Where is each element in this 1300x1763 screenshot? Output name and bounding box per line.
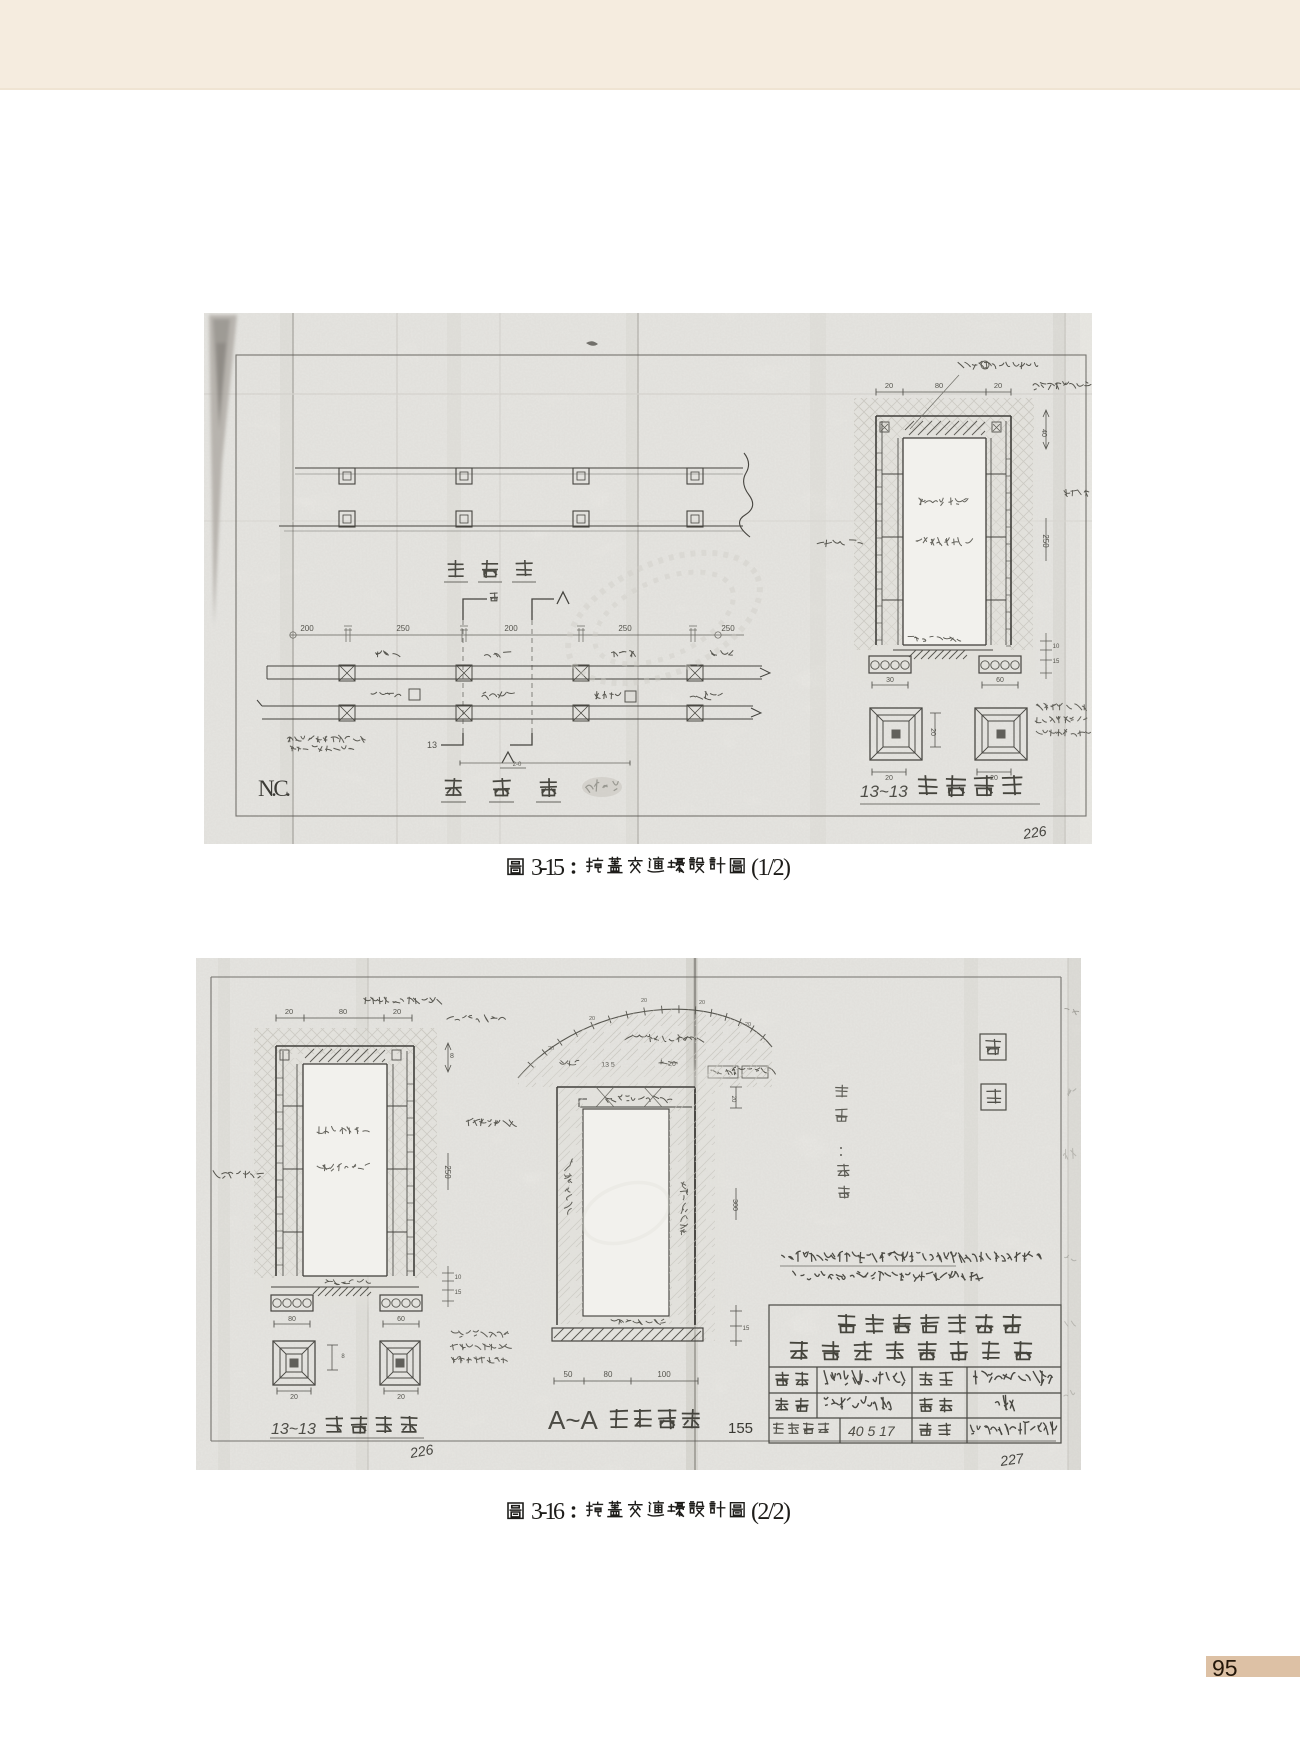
svg-text:(1/2): (1/2) <box>751 855 791 881</box>
svg-text:10: 10 <box>1053 644 1060 650</box>
svg-text:60: 60 <box>397 1316 405 1323</box>
svg-text:250: 250 <box>396 624 410 633</box>
svg-text:13~13: 13~13 <box>271 1421 316 1438</box>
svg-text:13: 13 <box>427 740 437 750</box>
svg-text:300: 300 <box>731 1199 738 1211</box>
svg-text:60: 60 <box>996 677 1004 684</box>
svg-text:A~A: A~A <box>548 1405 599 1435</box>
svg-text:15: 15 <box>743 1326 750 1332</box>
svg-text:20: 20 <box>393 1007 401 1016</box>
svg-text:20: 20 <box>290 1394 298 1401</box>
svg-text:80: 80 <box>604 1370 613 1379</box>
svg-text:20: 20 <box>589 1016 595 1022</box>
svg-text:200: 200 <box>300 624 314 633</box>
svg-text:3-15: 3-15 <box>531 855 565 881</box>
svg-text:13~13: 13~13 <box>860 782 908 801</box>
svg-text:250: 250 <box>618 624 632 633</box>
svg-text:155: 155 <box>728 1420 753 1437</box>
svg-text:20: 20 <box>699 1000 705 1006</box>
svg-text:20: 20 <box>730 1096 736 1103</box>
svg-text:40 5 17: 40 5 17 <box>848 1423 896 1439</box>
svg-text:20: 20 <box>397 1394 405 1401</box>
svg-text:20: 20 <box>885 775 893 782</box>
svg-text:(2/2): (2/2) <box>751 1499 791 1525</box>
svg-text:40: 40 <box>1040 429 1047 437</box>
svg-text:200: 200 <box>504 624 518 633</box>
svg-text:15: 15 <box>455 1290 462 1296</box>
svg-text:20: 20 <box>641 998 647 1004</box>
svg-text:N.C.: N.C. <box>258 776 291 801</box>
svg-text:100: 100 <box>657 1370 671 1379</box>
svg-text:50: 50 <box>564 1370 573 1379</box>
svg-text:15: 15 <box>1053 659 1060 665</box>
svg-text:10: 10 <box>455 1275 462 1281</box>
svg-text:250: 250 <box>1041 534 1050 548</box>
svg-text:20: 20 <box>929 728 936 736</box>
svg-text:80: 80 <box>339 1007 347 1016</box>
svg-text:250: 250 <box>721 624 735 633</box>
svg-text:250: 250 <box>443 1165 452 1179</box>
svg-text:20: 20 <box>994 381 1002 390</box>
svg-text:30: 30 <box>886 677 894 684</box>
svg-text:80: 80 <box>288 1316 296 1323</box>
svg-text:3-16: 3-16 <box>531 1499 565 1525</box>
svg-text:8: 8 <box>450 1053 454 1060</box>
svg-text:20: 20 <box>285 1007 293 1016</box>
svg-text:80: 80 <box>935 381 943 390</box>
svg-text:20: 20 <box>885 381 893 390</box>
